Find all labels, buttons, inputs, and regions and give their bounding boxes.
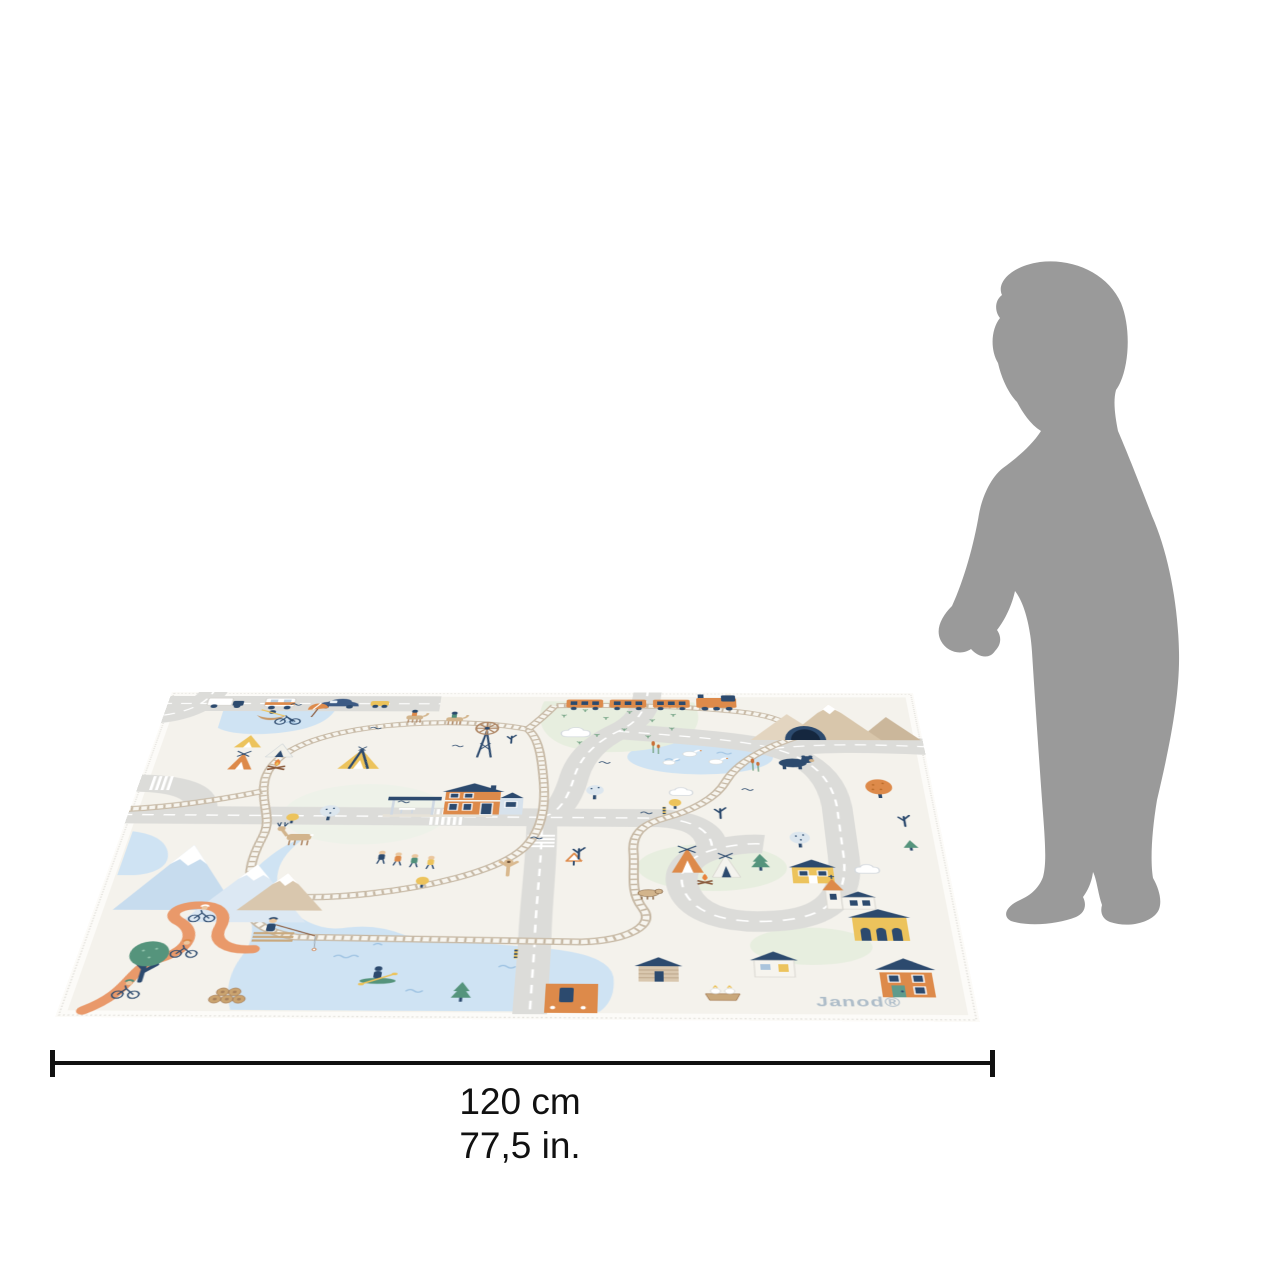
child-silhouette	[939, 261, 1179, 924]
dimension-value-inches: 77,5 in.	[350, 1124, 690, 1168]
dimension-end-cap-right	[990, 1050, 995, 1077]
product-photo: Janod® 120 cm 77,5 in.	[0, 0, 1280, 1280]
dimension-line	[52, 1061, 995, 1065]
dimension-labels: 120 cm 77,5 in.	[350, 1080, 690, 1167]
dimension-value-cm: 120 cm	[350, 1080, 690, 1124]
dimension-end-cap-left	[50, 1050, 55, 1077]
